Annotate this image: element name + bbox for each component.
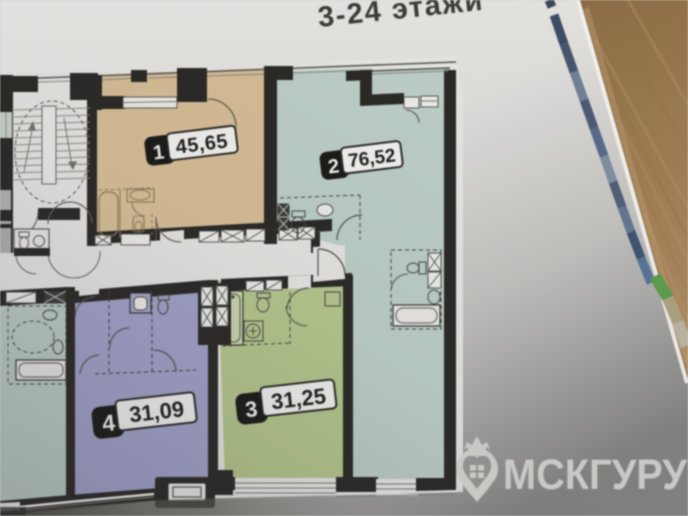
svg-text:МСКГУРУ: МСКГУРУ [503,451,688,499]
